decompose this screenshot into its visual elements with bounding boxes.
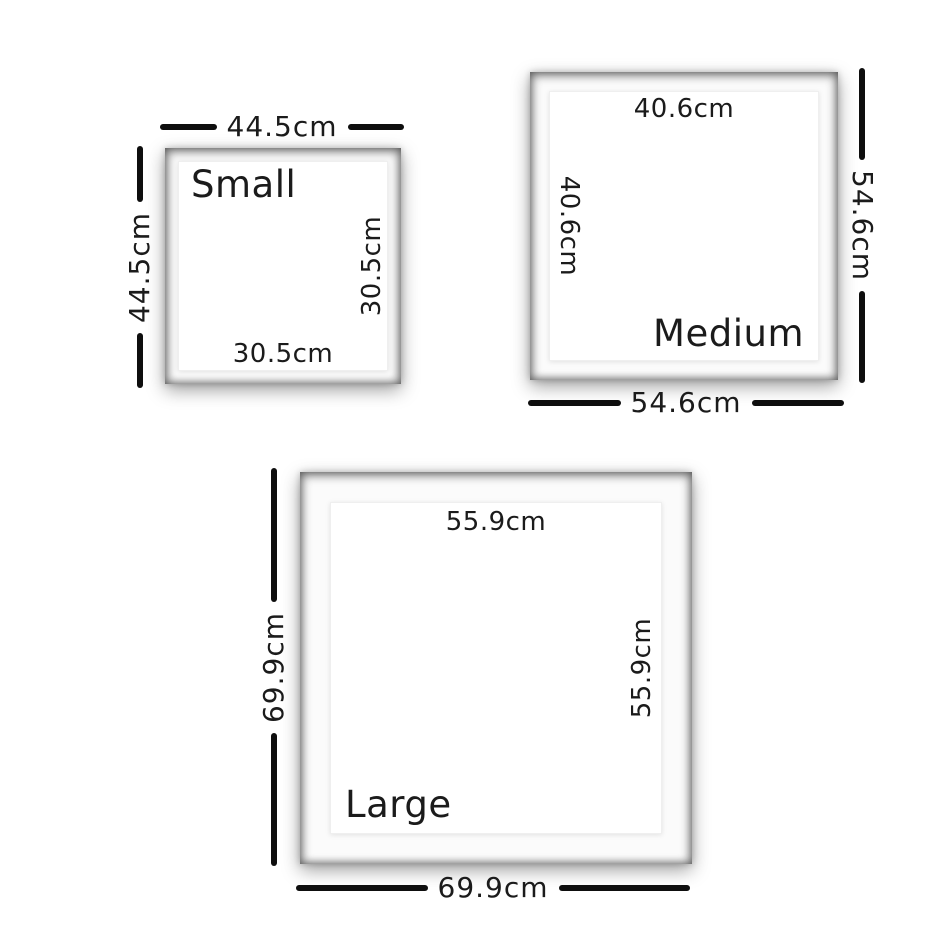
dimension-line-segment <box>859 68 865 160</box>
dimension-line-segment <box>348 124 405 130</box>
medium-frame-mat: 40.6cm 40.6cm Medium <box>530 72 838 380</box>
large-outer-height-label: 69.9cm <box>260 612 288 723</box>
small-outer-height-label: 44.5cm <box>126 212 154 323</box>
dimension-line-segment <box>559 885 691 891</box>
dimension-line-segment <box>271 733 277 867</box>
medium-frame-print-area: 40.6cm 40.6cm Medium <box>549 91 819 361</box>
large-outer-height-dimension: 69.9cm <box>258 468 290 866</box>
dimension-line-segment <box>859 291 865 383</box>
small-inner-height-label: 30.5cm <box>359 216 385 317</box>
large-size-label: Large <box>345 784 452 827</box>
small-outer-width-dimension: 44.5cm <box>160 110 404 144</box>
small-outer-height-dimension: 44.5cm <box>124 146 156 388</box>
medium-inner-width-label: 40.6cm <box>550 96 818 122</box>
large-inner-width-label: 55.9cm <box>331 509 661 535</box>
small-size-label: Small <box>191 164 296 207</box>
large-inner-height-label: 55.9cm <box>629 618 655 719</box>
medium-picture-frame: 40.6cm 40.6cm Medium <box>530 72 838 380</box>
large-outer-width-dimension: 69.9cm <box>296 871 690 905</box>
dimension-line-segment <box>137 146 143 202</box>
small-frame-mat: Small 30.5cm 30.5cm <box>165 148 401 384</box>
medium-size-label: Medium <box>653 313 804 356</box>
dimension-line-segment <box>137 333 143 389</box>
large-picture-frame: 55.9cm 55.9cm Large <box>300 472 692 864</box>
medium-outer-height-dimension: 54.6cm <box>846 68 878 383</box>
medium-outer-width-dimension: 54.6cm <box>528 386 844 420</box>
medium-inner-height-label: 40.6cm <box>556 176 582 277</box>
frame-size-guide: 44.5cm 44.5cm Small 30.5cm 30.5cm <box>0 0 950 950</box>
dimension-line-segment <box>160 124 217 130</box>
dimension-line-segment <box>296 885 428 891</box>
small-picture-frame: Small 30.5cm 30.5cm <box>165 148 401 384</box>
medium-outer-height-label: 54.6cm <box>848 170 876 281</box>
large-frame-mat: 55.9cm 55.9cm Large <box>300 472 692 864</box>
small-inner-width-label: 30.5cm <box>179 341 387 367</box>
small-frame-print-area: Small 30.5cm 30.5cm <box>178 161 388 371</box>
dimension-line-segment <box>271 468 277 602</box>
dimension-line-segment <box>528 400 621 406</box>
large-frame-print-area: 55.9cm 55.9cm Large <box>330 502 662 834</box>
dimension-line-segment <box>752 400 845 406</box>
small-outer-width-label: 44.5cm <box>227 113 338 141</box>
large-outer-width-label: 69.9cm <box>438 874 549 902</box>
medium-outer-width-label: 54.6cm <box>631 389 742 417</box>
